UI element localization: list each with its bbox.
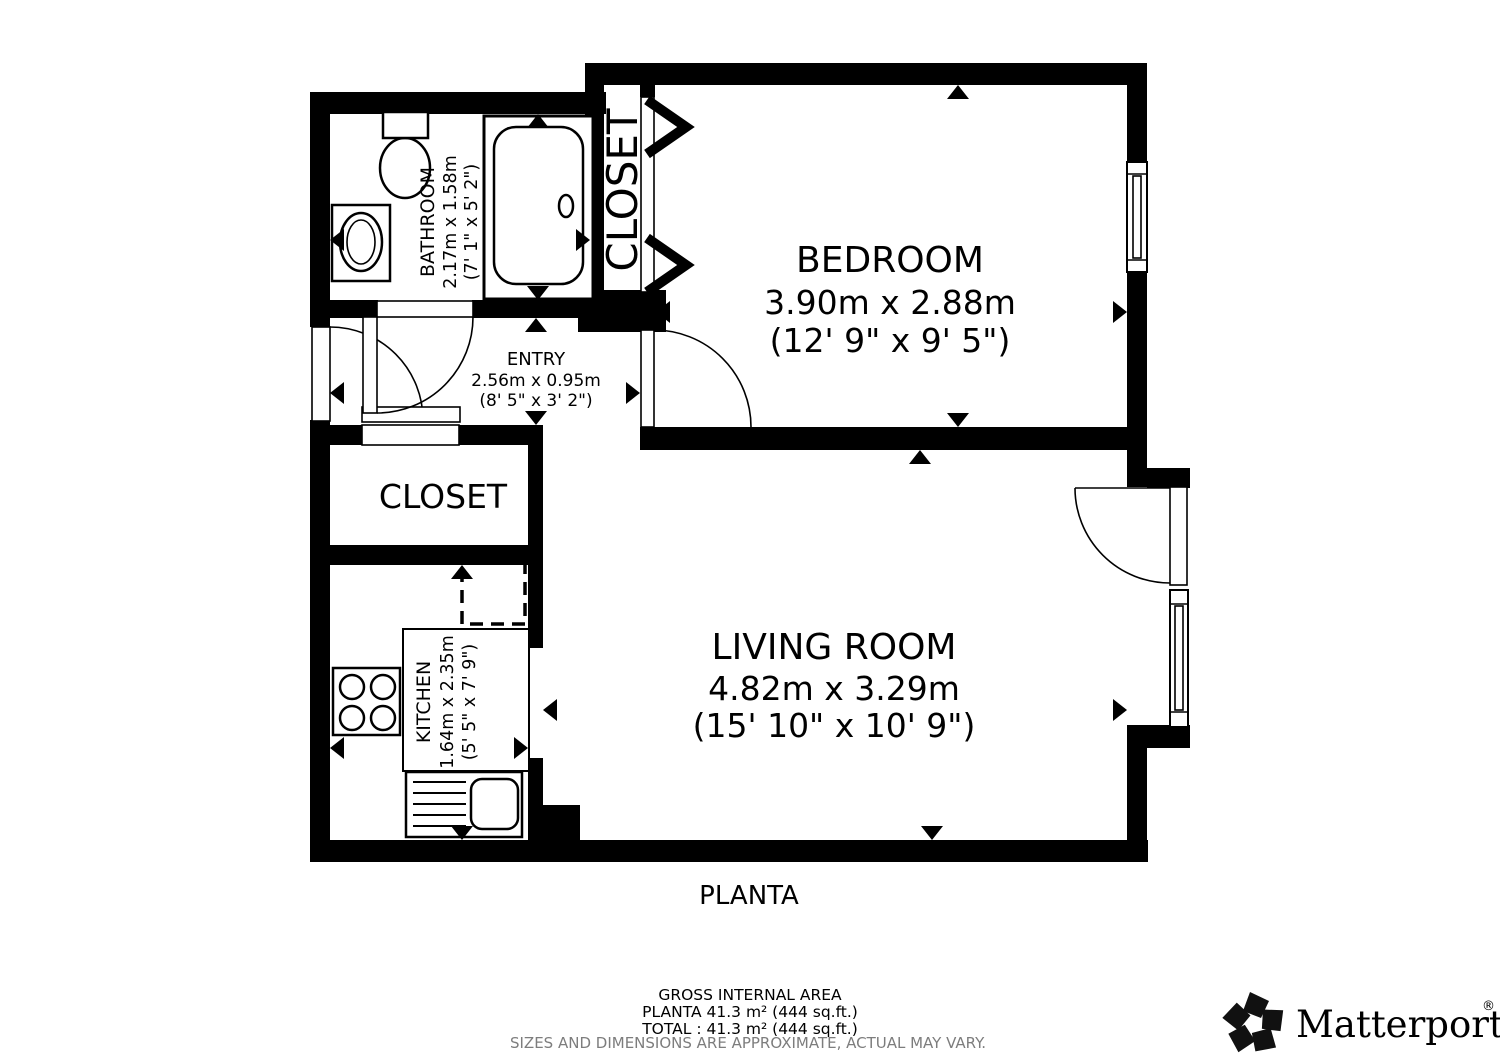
bedroom-window: [1127, 162, 1147, 272]
room-label-entry: ENTRY 2.56m x 0.95m (8' 5" x 3' 2"): [471, 349, 601, 411]
kitchen-dim-imperial: (5' 5" x 7' 9"): [460, 644, 480, 761]
matterport-logo: Matterport ®: [1220, 992, 1500, 1059]
matterport-wordmark: Matterport: [1296, 1003, 1500, 1046]
disclaimer-text: SIZES AND DIMENSIONS ARE APPROXIMATE, AC…: [510, 1034, 986, 1052]
floor-plan-page: BATHROOM 2.17m x 1.58m (7' 1" x 5' 2") C…: [0, 0, 1500, 1061]
matterport-pinwheel-icon: [1220, 992, 1289, 1059]
room-label-bathroom: BATHROOM 2.17m x 1.58m (7' 1" x 5' 2"): [417, 155, 482, 289]
registered-trademark-icon: ®: [1482, 999, 1495, 1014]
living-room-dim-metric: 4.82m x 3.29m: [708, 669, 960, 708]
living-room-dim-imperial: (15' 10" x 10' 9"): [693, 706, 976, 745]
bedroom-dim-metric: 3.90m x 2.88m: [764, 283, 1016, 322]
bathroom-door: [363, 301, 473, 413]
room-label-closet: CLOSET: [379, 477, 508, 516]
gross-area-title: GROSS INTERNAL AREA: [658, 986, 842, 1004]
entry-dim-imperial: (8' 5" x 3' 2"): [479, 391, 592, 411]
bathroom-name: BATHROOM: [417, 167, 439, 277]
planta-area-text: PLANTA 41.3 m² (444 sq.ft.): [642, 1003, 858, 1021]
room-label-bedroom: BEDROOM 3.90m x 2.88m (12' 9" x 9' 5"): [764, 240, 1016, 360]
bedroom-name: BEDROOM: [796, 240, 984, 281]
footer-area-summary: GROSS INTERNAL AREA PLANTA 41.3 m² (444 …: [510, 986, 986, 1052]
entry-dim-metric: 2.56m x 0.95m: [471, 371, 601, 391]
bathroom-dim-imperial: (7' 1" x 5' 2"): [462, 164, 482, 281]
appliance-dashed-icon: [462, 561, 525, 624]
bathroom-dim-metric: 2.17m x 1.58m: [441, 155, 461, 289]
room-label-closet-top: CLOSET: [598, 108, 647, 271]
entry-name: ENTRY: [507, 349, 566, 370]
stove-icon: [333, 668, 400, 735]
room-label-living-room: LIVING ROOM 4.82m x 3.29m (15' 10" x 10'…: [693, 627, 976, 745]
closet-bifold-door-icon: [641, 97, 686, 292]
bedroom-dim-imperial: (12' 9" x 9' 5"): [770, 321, 1011, 360]
living-room-name: LIVING ROOM: [712, 627, 957, 668]
floor-label: PLANTA: [699, 881, 799, 911]
front-door: [312, 327, 460, 422]
closet-top-name: CLOSET: [598, 108, 647, 271]
bedroom-door: [641, 330, 751, 427]
closet-name: CLOSET: [379, 477, 508, 516]
living-room-window: [1170, 590, 1188, 727]
kitchen-dim-metric: 1.64m x 2.35m: [438, 635, 458, 769]
closet-doorway: [362, 425, 459, 445]
kitchen-name: KITCHEN: [413, 661, 435, 743]
living-room-door: [1075, 487, 1187, 585]
bathtub-icon: [484, 116, 593, 299]
floor-plan-svg: BATHROOM 2.17m x 1.58m (7' 1" x 5' 2") C…: [0, 0, 1500, 1061]
